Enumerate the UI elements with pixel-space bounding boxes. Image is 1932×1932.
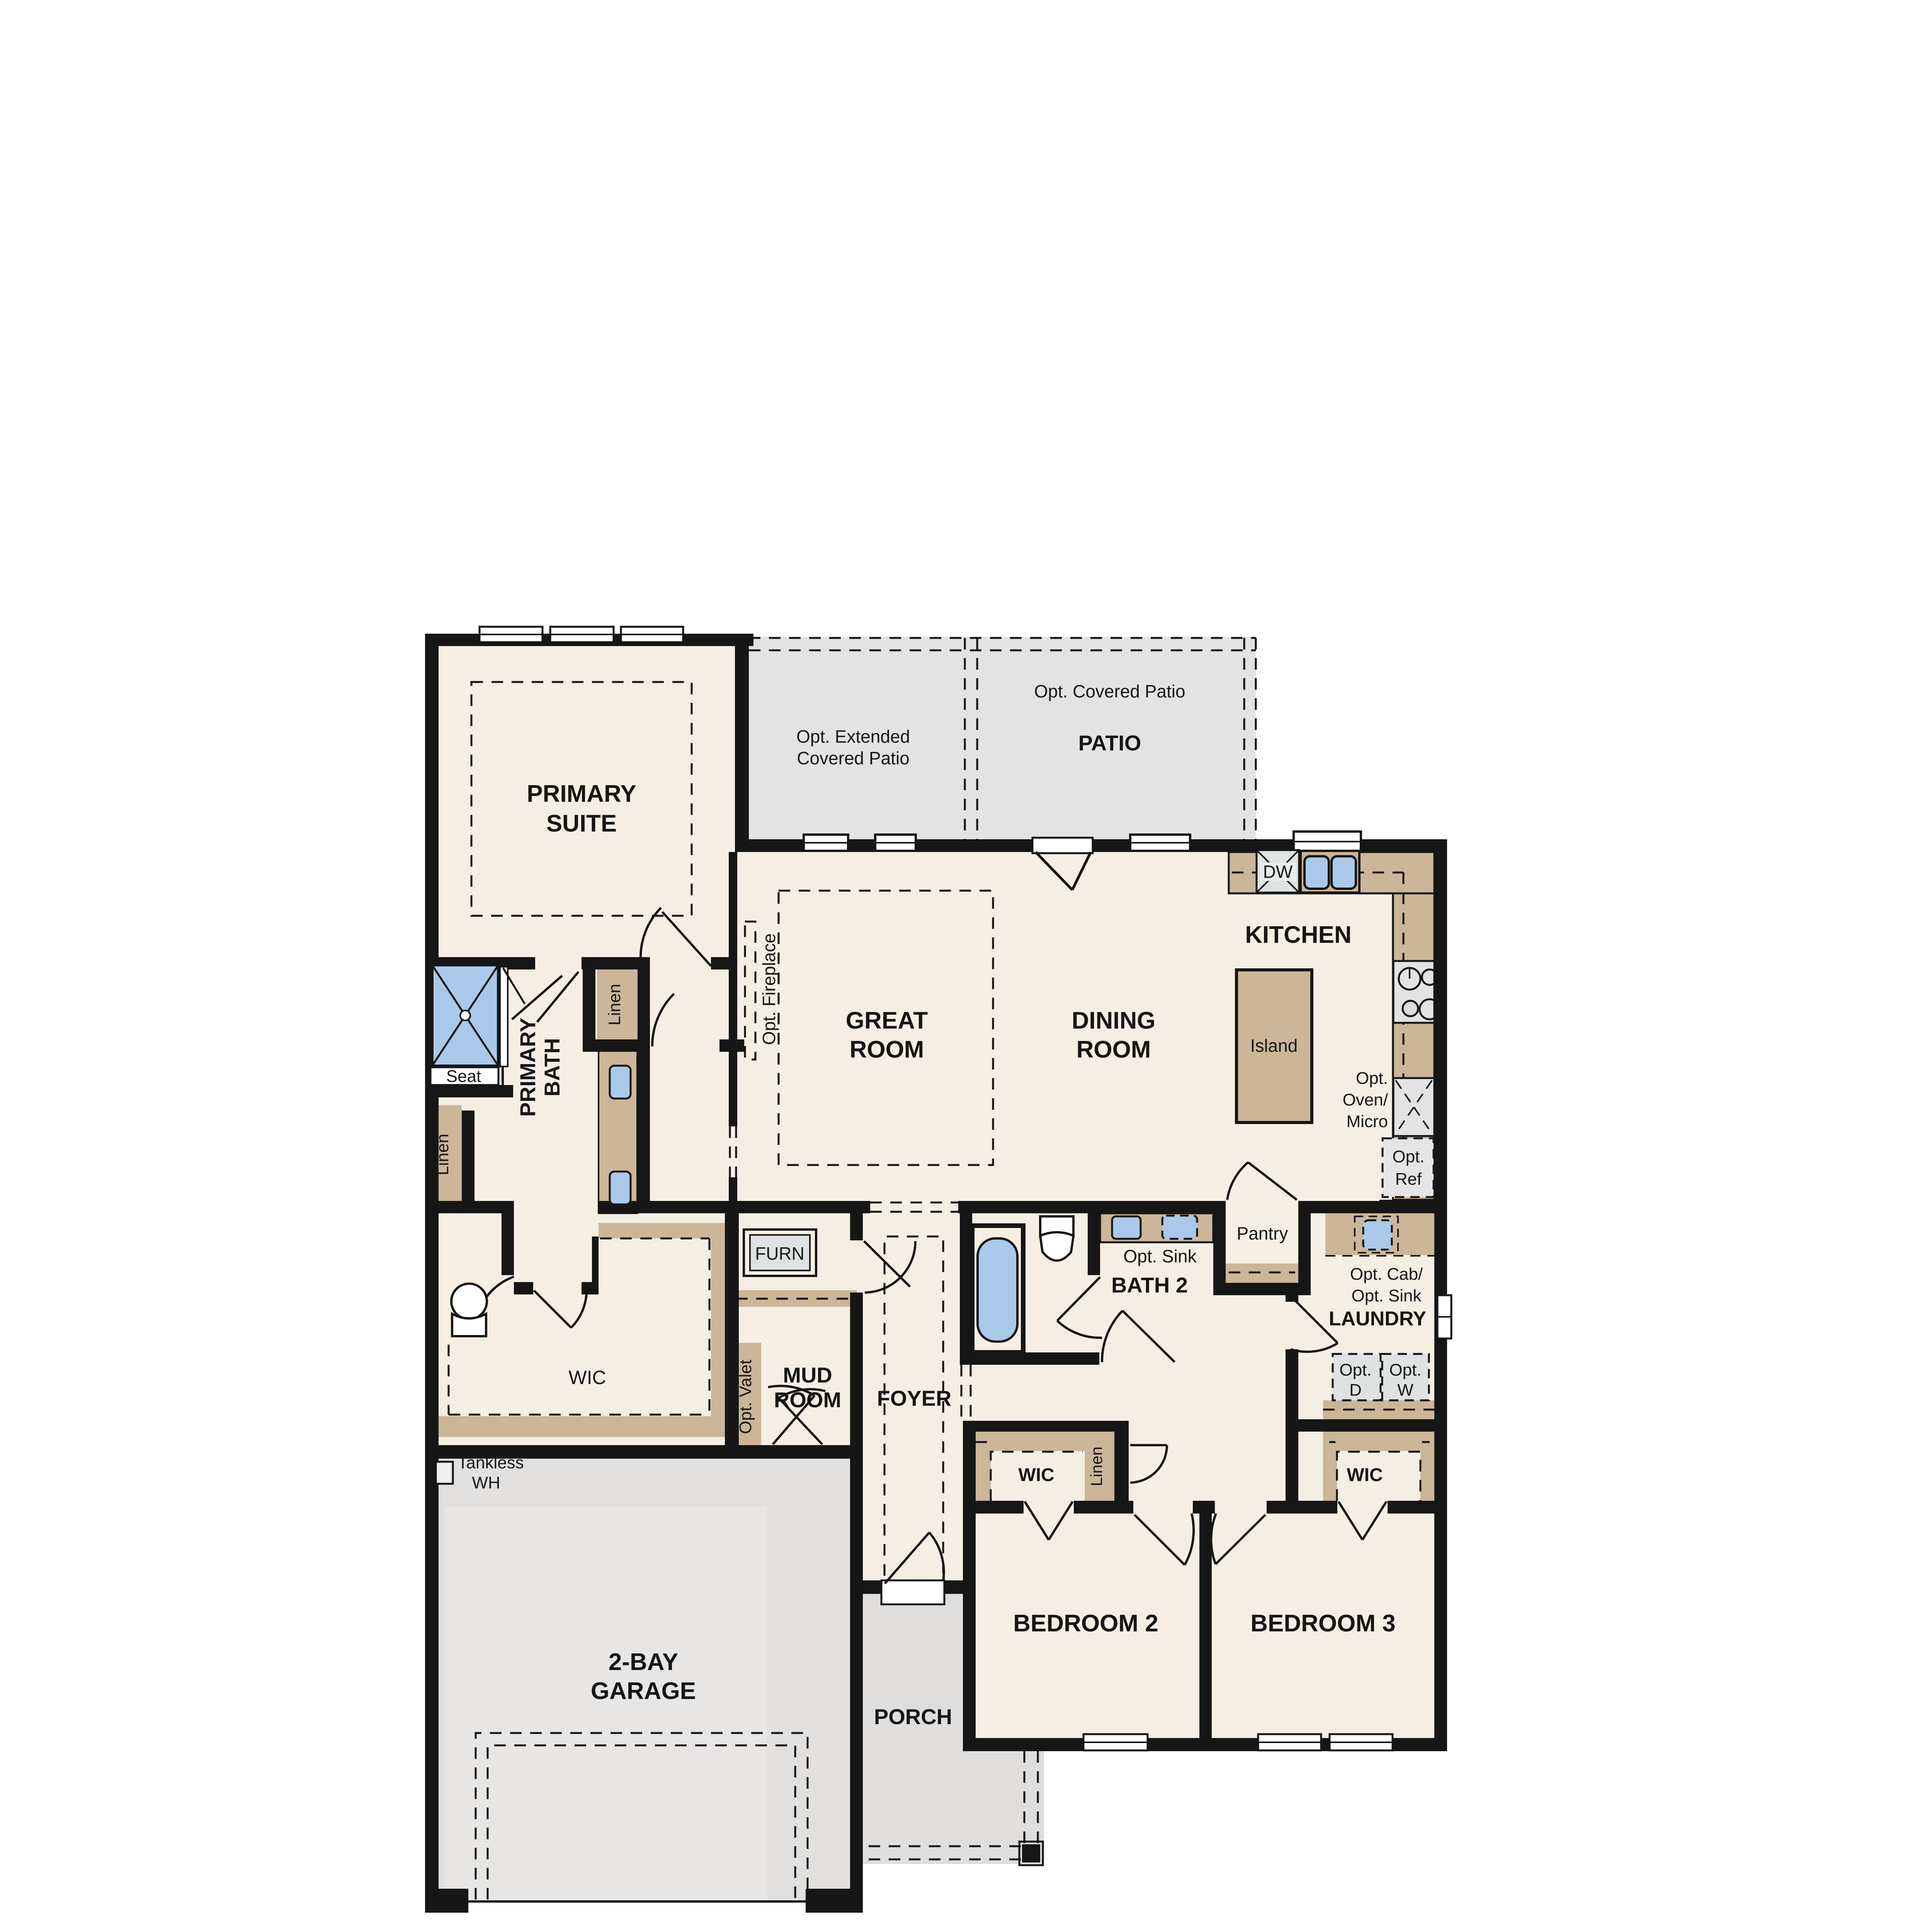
svg-text:Opt. Extended: Opt. Extended (796, 726, 910, 747)
svg-text:GREAT: GREAT (846, 1007, 928, 1034)
svg-text:W: W (1397, 1381, 1413, 1400)
svg-text:ROOM: ROOM (774, 1388, 841, 1412)
svg-text:FURN: FURN (755, 1243, 804, 1264)
svg-text:BATH: BATH (540, 1038, 564, 1096)
svg-text:PRIMARY: PRIMARY (515, 1018, 540, 1117)
svg-text:Pantry: Pantry (1237, 1223, 1288, 1243)
svg-text:D: D (1349, 1381, 1362, 1400)
svg-text:Linen: Linen (433, 1134, 452, 1175)
svg-text:SUITE: SUITE (546, 810, 617, 837)
svg-text:LAUNDRY: LAUNDRY (1329, 1308, 1426, 1330)
svg-text:Opt. Valet: Opt. Valet (736, 1360, 755, 1434)
svg-text:Opt. Sink: Opt. Sink (1123, 1246, 1197, 1266)
svg-text:DW: DW (1263, 862, 1293, 882)
svg-text:BATH 2: BATH 2 (1111, 1273, 1188, 1297)
svg-text:WIC: WIC (1018, 1465, 1054, 1485)
svg-text:Micro: Micro (1346, 1112, 1388, 1131)
svg-text:Opt. Cab/: Opt. Cab/ (1350, 1265, 1423, 1284)
svg-text:KITCHEN: KITCHEN (1245, 922, 1352, 948)
svg-text:Opt.: Opt. (1389, 1361, 1421, 1379)
svg-text:Tankless: Tankless (457, 1453, 524, 1472)
svg-text:Opt.: Opt. (1356, 1069, 1388, 1088)
svg-text:Ref: Ref (1395, 1170, 1422, 1189)
svg-text:MAIN LEVEL: MAIN LEVEL (430, 1929, 612, 1932)
svg-text:Opt. Sink: Opt. Sink (1352, 1286, 1422, 1305)
svg-text:MUD: MUD (783, 1363, 832, 1387)
svg-text:WH: WH (472, 1473, 500, 1492)
svg-text:Opt.: Opt. (1392, 1147, 1424, 1166)
svg-text:PRIMARY: PRIMARY (527, 781, 636, 807)
svg-text:BEDROOM 3: BEDROOM 3 (1250, 1610, 1395, 1637)
svg-text:Linen: Linen (1087, 1447, 1105, 1486)
svg-text:ROOM: ROOM (850, 1036, 924, 1063)
svg-text:2-BAY: 2-BAY (609, 1649, 678, 1675)
svg-text:Opt. Covered Patio: Opt. Covered Patio (1034, 681, 1185, 701)
svg-text:ROOM: ROOM (1077, 1036, 1151, 1063)
svg-text:FOYER: FOYER (877, 1386, 952, 1410)
svg-text:WIC: WIC (1347, 1465, 1383, 1485)
svg-text:Opt.: Opt. (1339, 1361, 1371, 1379)
svg-text:GARAGE: GARAGE (591, 1678, 696, 1704)
svg-text:PORCH: PORCH (874, 1704, 952, 1729)
svg-text:WIC: WIC (568, 1367, 606, 1388)
svg-text:Seat: Seat (446, 1067, 481, 1086)
svg-text:Opt. Fireplace: Opt. Fireplace (759, 934, 779, 1045)
svg-text:Covered Patio: Covered Patio (797, 748, 910, 768)
svg-text:Oven/: Oven/ (1343, 1090, 1388, 1109)
svg-text:BEDROOM 2: BEDROOM 2 (1013, 1610, 1158, 1637)
svg-text:Linen: Linen (605, 984, 624, 1026)
svg-text:DINING: DINING (1072, 1007, 1156, 1034)
svg-text:Island: Island (1250, 1036, 1298, 1056)
svg-text:PATIO: PATIO (1078, 731, 1141, 755)
